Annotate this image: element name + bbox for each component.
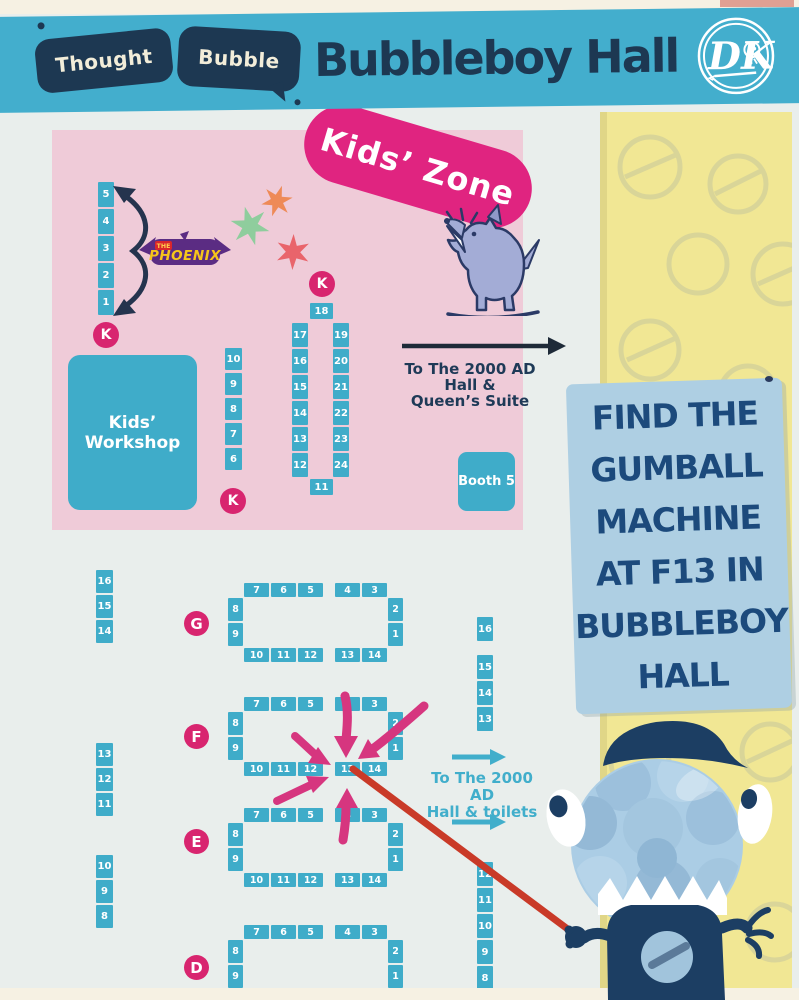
cell-2: 2 (388, 712, 403, 735)
cell-13: 13 (335, 873, 360, 887)
phoenix-name-label: PHOENIX (149, 248, 221, 264)
cell-8: 8 (228, 940, 243, 963)
brand-bubble-bubble-label: Bubble (198, 45, 281, 74)
cell-10: 10 (244, 648, 269, 662)
cell-13: 13 (477, 707, 493, 731)
cell-17: 17 (292, 323, 308, 347)
cell-20: 20 (333, 349, 349, 373)
cell-1: 1 (388, 965, 403, 988)
page-title: Bubbleboy Hall (314, 29, 679, 87)
logo-dot-top (38, 22, 45, 29)
row-label-f: F (184, 724, 209, 749)
cell-7: 7 (244, 925, 269, 939)
hall-left-col-14-16: 161514 (96, 570, 113, 643)
hall-right-col-13-15: 151413 (477, 655, 493, 731)
cell-8: 8 (228, 712, 243, 735)
hall-right-col-8-12: 12111098 (477, 862, 493, 990)
cell-workshop: Workshop (85, 433, 181, 453)
cell-6: 6 (271, 583, 296, 597)
hall-right-col-16: 16 (477, 617, 493, 641)
header-banner: Thought Bubble Bubbleboy Hall DK (0, 7, 799, 113)
cell-1: 1 (98, 290, 114, 315)
gumball-machine-monster-icon (528, 688, 799, 1000)
cell-7: 7 (244, 697, 269, 711)
cell-2: 2 (388, 823, 403, 846)
barking-dog-icon (444, 200, 540, 316)
cell-9: 9 (228, 848, 243, 871)
cell-10: 10 (244, 762, 269, 776)
cell-14: 14 (292, 401, 308, 425)
monster-coin-dial (641, 931, 693, 983)
cell-10: 10 (244, 873, 269, 887)
row-g-island: 765 43 89 21 101112 1314 (228, 583, 403, 662)
cell-6: 6 (225, 448, 242, 470)
cell-find-the: FIND THE (566, 387, 784, 446)
cell-3: 3 (362, 925, 387, 939)
cell-3: 3 (362, 583, 387, 597)
row-label-g: G (184, 611, 209, 636)
kids-marker-1: K (93, 322, 119, 348)
cell-15: 15 (292, 375, 308, 399)
cell-12: 12 (298, 762, 323, 776)
cell-23: 23 (333, 427, 349, 451)
cell-4: 4 (98, 209, 114, 234)
kids-workshop-block: Kids’Workshop (68, 355, 197, 510)
gumball-callout-panel: FIND THEGUMBALLMACHINEAT F13 INBUBBLEBOY… (566, 378, 792, 715)
cell-16: 16 (292, 349, 308, 373)
cell-9: 9 (96, 880, 113, 903)
cell-11: 11 (477, 888, 493, 912)
cell-to-the-2000-ad: To The 2000 AD (404, 361, 536, 377)
cell-9: 9 (228, 965, 243, 988)
monster-beret (603, 721, 748, 768)
cell-14: 14 (362, 873, 387, 887)
cell-2: 2 (98, 263, 114, 288)
hall-left-col-11-13: 131211 (96, 743, 113, 816)
cell-11: 11 (271, 648, 296, 662)
kids-marker-3: K (309, 271, 335, 297)
kids-booths-1-5: 54321 (98, 182, 114, 315)
cell-10: 10 (225, 348, 242, 370)
cell-7: 7 (244, 583, 269, 597)
cell-14: 14 (96, 620, 113, 643)
cell-14: 14 (362, 648, 387, 662)
cell-13: 13 (96, 743, 113, 766)
cell-5: 5 (298, 583, 323, 597)
cell-7: 7 (225, 423, 242, 445)
cell-9: 9 (228, 623, 243, 646)
cell-13: 13 (292, 427, 308, 451)
cell-1: 1 (388, 737, 403, 760)
cell-5: 5 (98, 182, 114, 207)
cell-16: 16 (477, 617, 493, 641)
cell-6: 6 (271, 925, 296, 939)
row-label-e: E (184, 829, 209, 854)
cell-4: 4 (335, 583, 360, 597)
cell-2: 2 (388, 940, 403, 963)
cell-6: 6 (271, 697, 296, 711)
cell-8: 8 (225, 398, 242, 420)
cell-11: 11 (96, 793, 113, 816)
cell-5: 5 (298, 697, 323, 711)
cell-6: 6 (271, 808, 296, 822)
kids-island-left-col: 171615141312 (292, 323, 308, 477)
cell-19: 19 (333, 323, 349, 347)
cell-8: 8 (96, 905, 113, 928)
cell-1: 1 (388, 623, 403, 646)
cell-queen-s-suite: Queen’s Suite (404, 393, 536, 409)
cell-at-f13-in: AT F13 IN (571, 543, 789, 602)
cell-10: 10 (96, 855, 113, 878)
kids-booths-6-10: 109876 (225, 348, 242, 470)
brand-bubble-thought-label: Thought (54, 44, 153, 78)
cell-24: 24 (333, 453, 349, 477)
top-corner-sliver (720, 0, 794, 7)
row-f-island: 765 43 89 21 101112 1314 (228, 697, 403, 776)
cell-machine: MACHINE (569, 491, 787, 550)
cell-7: 7 (244, 808, 269, 822)
booth-11: 11 (310, 479, 333, 495)
cell-3: 3 (362, 697, 387, 711)
cell-21: 21 (333, 375, 349, 399)
cell-5: 5 (298, 925, 323, 939)
bubbleboy-hall-map: 54321 109876 18 171615141312 19202122232… (0, 0, 799, 1000)
panel-pin-dot (765, 376, 773, 382)
booth-5-block: Booth 5 (458, 452, 515, 511)
cell-15: 15 (477, 655, 493, 679)
logo-dot-bottom (294, 99, 300, 105)
kids-island-right-col: 192021222324 (333, 323, 349, 477)
phoenix-logo: THE PHOENIX (138, 230, 232, 270)
cell-kids-: Kids’ (109, 413, 157, 433)
cell-12: 12 (477, 862, 493, 886)
cell-1: 1 (388, 848, 403, 871)
cell-12: 12 (298, 873, 323, 887)
cell-gumball: GUMBALL (568, 439, 786, 498)
cell-13: 13 (335, 762, 360, 776)
cell-14: 14 (477, 681, 493, 705)
row-label-d: D (184, 955, 209, 980)
cell-13: 13 (335, 648, 360, 662)
dk-logo-monogram: DK (707, 32, 776, 78)
cell-8: 8 (228, 823, 243, 846)
cell-16: 16 (96, 570, 113, 593)
cell-9: 9 (228, 737, 243, 760)
cell-4: 4 (335, 808, 360, 822)
cell-3: 3 (98, 236, 114, 261)
kids-marker-2: K (220, 488, 246, 514)
booth-18: 18 (310, 303, 333, 319)
cell-10: 10 (477, 914, 493, 938)
cell-bubbleboy: BUBBLEBOY (573, 595, 791, 654)
cell-8: 8 (228, 598, 243, 621)
cell-5: 5 (298, 808, 323, 822)
cell-4: 4 (335, 697, 360, 711)
cell-4: 4 (335, 925, 360, 939)
cell-11: 11 (271, 873, 296, 887)
cell-12: 12 (292, 453, 308, 477)
kids-island-11-24: 18 171615141312 192021222324 11 (292, 303, 350, 498)
cell-14: 14 (362, 762, 387, 776)
cell-12: 12 (96, 768, 113, 791)
hall-left-col-8-10: 1098 (96, 855, 113, 928)
monster-hand (565, 926, 588, 949)
cell-hall-: Hall & (404, 377, 536, 393)
exit-note-queens-suite: To The 2000 ADHall &Queen’s Suite (404, 361, 536, 409)
cell-2: 2 (388, 598, 403, 621)
cell-3: 3 (362, 808, 387, 822)
cell-22: 22 (333, 401, 349, 425)
dk-logo-icon: DK (693, 13, 778, 98)
cell-8: 8 (477, 966, 493, 990)
cell-11: 11 (271, 762, 296, 776)
brand-bubble-thought: Thought (34, 27, 175, 94)
cell-12: 12 (298, 648, 323, 662)
cell-9: 9 (225, 373, 242, 395)
cell-15: 15 (96, 595, 113, 618)
row-e-island: 765 43 89 21 101112 1314 (228, 808, 403, 887)
cell-9: 9 (477, 940, 493, 964)
